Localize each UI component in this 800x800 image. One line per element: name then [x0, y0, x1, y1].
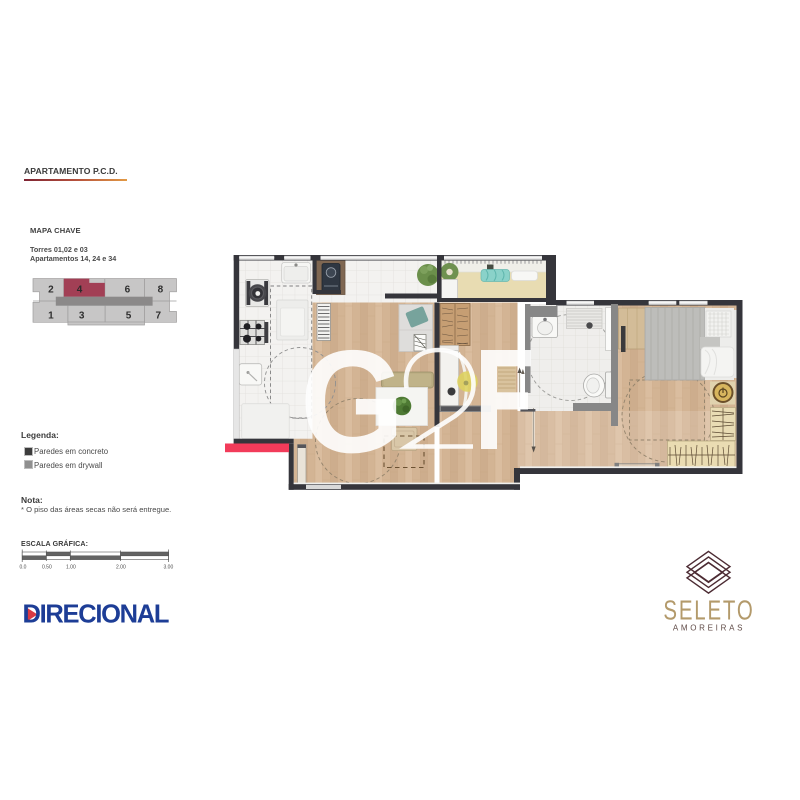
- svg-text:G: G: [300, 320, 404, 484]
